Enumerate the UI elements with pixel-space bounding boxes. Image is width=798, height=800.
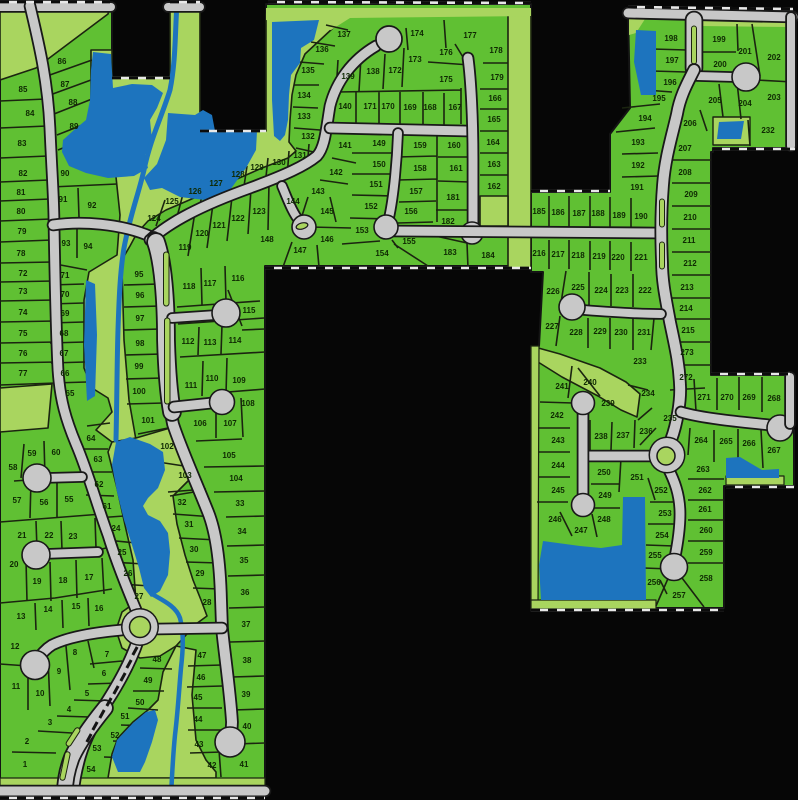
svg-text:164: 164 (486, 138, 500, 147)
svg-text:37: 37 (242, 620, 251, 629)
svg-text:32: 32 (178, 498, 187, 507)
svg-text:56: 56 (40, 498, 49, 507)
svg-text:81: 81 (17, 188, 26, 197)
svg-text:82: 82 (19, 169, 28, 178)
svg-text:226: 226 (546, 287, 560, 296)
svg-text:254: 254 (655, 531, 669, 540)
svg-text:172: 172 (388, 66, 402, 75)
svg-text:1: 1 (23, 760, 28, 769)
svg-text:111: 111 (185, 381, 198, 390)
svg-text:123: 123 (252, 207, 266, 216)
svg-text:131: 131 (293, 151, 307, 160)
svg-text:174: 174 (410, 29, 424, 38)
svg-text:230: 230 (614, 328, 628, 337)
svg-text:64: 64 (87, 434, 96, 443)
svg-text:260: 260 (699, 526, 713, 535)
svg-text:190: 190 (634, 212, 648, 221)
svg-text:104: 104 (229, 474, 243, 483)
svg-text:62: 62 (95, 480, 104, 489)
svg-text:154: 154 (375, 249, 389, 258)
svg-text:60: 60 (52, 448, 61, 457)
svg-text:29: 29 (196, 569, 205, 578)
svg-text:178: 178 (489, 46, 503, 55)
svg-text:38: 38 (243, 656, 252, 665)
svg-text:22: 22 (45, 531, 54, 540)
svg-text:138: 138 (366, 67, 380, 76)
svg-text:261: 261 (698, 505, 712, 514)
svg-text:152: 152 (364, 202, 378, 211)
svg-text:118: 118 (183, 282, 196, 291)
svg-text:211: 211 (683, 236, 696, 245)
svg-text:46: 46 (197, 673, 206, 682)
svg-text:75: 75 (19, 329, 28, 338)
svg-text:171: 171 (363, 102, 377, 111)
svg-text:72: 72 (19, 269, 28, 278)
svg-text:170: 170 (381, 102, 395, 111)
svg-text:83: 83 (18, 139, 27, 148)
svg-text:91: 91 (59, 195, 68, 204)
svg-text:110: 110 (206, 374, 219, 383)
svg-text:238: 238 (594, 432, 608, 441)
svg-text:68: 68 (60, 329, 69, 338)
svg-text:30: 30 (190, 545, 199, 554)
svg-text:16: 16 (95, 604, 104, 613)
svg-text:157: 157 (409, 187, 423, 196)
svg-text:250: 250 (597, 468, 611, 477)
svg-text:58: 58 (9, 463, 18, 472)
svg-text:268: 268 (767, 394, 781, 403)
svg-text:31: 31 (185, 520, 194, 529)
svg-text:49: 49 (144, 676, 153, 685)
svg-text:222: 222 (638, 286, 652, 295)
svg-text:36: 36 (241, 588, 250, 597)
svg-text:265: 265 (719, 437, 733, 446)
svg-text:73: 73 (19, 287, 28, 296)
svg-text:87: 87 (61, 80, 70, 89)
svg-text:242: 242 (550, 411, 564, 420)
svg-text:251: 251 (630, 473, 644, 482)
svg-text:189: 189 (612, 211, 626, 220)
svg-text:273: 273 (680, 348, 694, 357)
svg-text:130: 130 (272, 158, 286, 167)
svg-text:248: 248 (597, 515, 611, 524)
svg-text:100: 100 (132, 387, 146, 396)
svg-text:6: 6 (102, 669, 107, 678)
svg-text:235: 235 (663, 414, 677, 423)
svg-text:85: 85 (19, 85, 28, 94)
svg-text:54: 54 (87, 765, 96, 774)
svg-text:108: 108 (241, 399, 255, 408)
svg-text:126: 126 (188, 187, 202, 196)
svg-text:151: 151 (369, 180, 383, 189)
svg-text:115: 115 (243, 306, 256, 315)
svg-text:187: 187 (572, 209, 586, 218)
svg-text:215: 215 (681, 326, 695, 335)
svg-text:120: 120 (195, 229, 209, 238)
svg-text:77: 77 (19, 369, 28, 378)
svg-text:217: 217 (551, 250, 565, 259)
svg-text:48: 48 (153, 655, 162, 664)
svg-text:17: 17 (85, 573, 94, 582)
svg-text:158: 158 (413, 164, 427, 173)
svg-text:96: 96 (136, 291, 145, 300)
svg-text:18: 18 (59, 576, 68, 585)
svg-text:53: 53 (93, 744, 102, 753)
svg-text:214: 214 (679, 304, 693, 313)
svg-text:150: 150 (372, 160, 386, 169)
svg-text:76: 76 (19, 349, 28, 358)
svg-text:119: 119 (179, 243, 192, 252)
svg-text:147: 147 (293, 246, 307, 255)
svg-text:114: 114 (229, 336, 242, 345)
svg-text:40: 40 (243, 722, 252, 731)
svg-text:13: 13 (17, 612, 26, 621)
svg-text:107: 107 (223, 419, 237, 428)
svg-text:135: 135 (301, 66, 315, 75)
svg-text:44: 44 (194, 715, 203, 724)
svg-text:165: 165 (487, 115, 501, 124)
svg-text:173: 173 (408, 55, 422, 64)
svg-text:271: 271 (697, 393, 711, 402)
svg-text:196: 196 (663, 78, 677, 87)
svg-text:149: 149 (372, 139, 386, 148)
svg-text:88: 88 (69, 98, 78, 107)
svg-text:78: 78 (17, 249, 26, 258)
svg-text:67: 67 (60, 349, 69, 358)
svg-text:116: 116 (232, 274, 245, 283)
svg-text:233: 233 (633, 357, 647, 366)
svg-text:208: 208 (678, 168, 692, 177)
svg-text:195: 195 (652, 94, 666, 103)
svg-text:55: 55 (65, 495, 74, 504)
svg-text:35: 35 (240, 556, 249, 565)
svg-text:146: 146 (320, 235, 334, 244)
svg-text:12: 12 (11, 642, 20, 651)
svg-text:142: 142 (329, 168, 343, 177)
svg-text:28: 28 (203, 598, 212, 607)
svg-text:65: 65 (66, 389, 75, 398)
svg-text:155: 155 (402, 237, 416, 246)
svg-text:15: 15 (72, 602, 81, 611)
svg-text:167: 167 (448, 103, 462, 112)
svg-text:198: 198 (664, 34, 678, 43)
svg-text:153: 153 (355, 226, 369, 235)
svg-text:219: 219 (592, 252, 606, 261)
svg-text:252: 252 (654, 486, 668, 495)
svg-text:216: 216 (532, 249, 546, 258)
svg-text:234: 234 (641, 389, 655, 398)
svg-text:221: 221 (634, 253, 648, 262)
svg-text:182: 182 (441, 217, 455, 226)
svg-text:263: 263 (696, 465, 710, 474)
svg-text:140: 140 (338, 102, 352, 111)
svg-text:7: 7 (105, 650, 110, 659)
svg-text:112: 112 (182, 337, 195, 346)
svg-text:102: 102 (160, 442, 174, 451)
svg-text:148: 148 (260, 235, 274, 244)
svg-text:109: 109 (232, 376, 246, 385)
svg-text:240: 240 (583, 378, 597, 387)
svg-text:51: 51 (121, 712, 130, 721)
svg-text:11: 11 (12, 682, 21, 691)
svg-text:42: 42 (208, 761, 217, 770)
svg-text:258: 258 (699, 574, 713, 583)
svg-text:89: 89 (70, 122, 79, 131)
svg-text:92: 92 (88, 201, 97, 210)
svg-text:249: 249 (598, 491, 612, 500)
svg-text:159: 159 (413, 141, 427, 150)
svg-text:259: 259 (699, 548, 713, 557)
svg-text:264: 264 (694, 436, 708, 445)
svg-text:228: 228 (569, 328, 583, 337)
svg-text:133: 133 (297, 112, 311, 121)
svg-text:207: 207 (678, 144, 692, 153)
svg-text:201: 201 (738, 47, 752, 56)
svg-text:209: 209 (684, 190, 698, 199)
svg-text:224: 224 (594, 286, 608, 295)
svg-text:185: 185 (532, 207, 546, 216)
svg-text:163: 163 (487, 160, 501, 169)
svg-text:59: 59 (28, 449, 37, 458)
svg-text:145: 145 (320, 207, 334, 216)
svg-text:129: 129 (250, 163, 264, 172)
svg-text:161: 161 (449, 164, 463, 173)
svg-text:255: 255 (648, 551, 662, 560)
svg-text:229: 229 (593, 327, 607, 336)
svg-text:101: 101 (141, 416, 155, 425)
svg-text:267: 267 (767, 446, 781, 455)
svg-text:33: 33 (236, 499, 245, 508)
svg-text:71: 71 (61, 271, 70, 280)
svg-text:192: 192 (631, 161, 645, 170)
svg-text:95: 95 (135, 270, 144, 279)
svg-text:63: 63 (94, 455, 103, 464)
svg-text:244: 244 (551, 461, 565, 470)
svg-text:141: 141 (338, 141, 352, 150)
svg-text:86: 86 (58, 57, 67, 66)
svg-text:97: 97 (136, 314, 145, 323)
svg-text:179: 179 (490, 73, 504, 82)
svg-text:61: 61 (103, 502, 112, 511)
svg-text:99: 99 (135, 362, 144, 371)
svg-text:210: 210 (683, 213, 697, 222)
svg-text:117: 117 (204, 279, 217, 288)
svg-text:121: 121 (212, 221, 226, 230)
svg-text:206: 206 (683, 119, 697, 128)
svg-text:132: 132 (301, 132, 315, 141)
svg-text:162: 162 (487, 182, 501, 191)
svg-text:183: 183 (443, 248, 457, 257)
svg-text:139: 139 (341, 72, 355, 81)
svg-text:70: 70 (61, 290, 70, 299)
svg-text:225: 225 (571, 283, 585, 292)
svg-text:243: 243 (551, 436, 565, 445)
svg-text:21: 21 (18, 531, 27, 540)
svg-text:106: 106 (193, 419, 207, 428)
svg-text:193: 193 (631, 138, 645, 147)
svg-text:27: 27 (135, 592, 144, 601)
svg-text:128: 128 (231, 170, 245, 179)
svg-text:236: 236 (639, 427, 653, 436)
svg-text:231: 231 (637, 328, 651, 337)
svg-text:69: 69 (61, 309, 70, 318)
svg-text:113: 113 (204, 338, 217, 347)
svg-text:137: 137 (337, 30, 351, 39)
svg-text:8: 8 (73, 648, 78, 657)
svg-text:122: 122 (231, 214, 245, 223)
svg-text:186: 186 (551, 208, 565, 217)
svg-text:223: 223 (615, 286, 629, 295)
svg-text:50: 50 (136, 698, 145, 707)
svg-text:24: 24 (112, 524, 121, 533)
svg-text:57: 57 (13, 496, 22, 505)
svg-text:5: 5 (85, 689, 90, 698)
svg-text:239: 239 (601, 399, 615, 408)
svg-text:227: 227 (545, 322, 559, 331)
svg-text:41: 41 (240, 760, 249, 769)
svg-text:144: 144 (286, 197, 300, 206)
svg-text:156: 156 (404, 207, 418, 216)
svg-text:103: 103 (178, 471, 192, 480)
svg-text:213: 213 (680, 283, 694, 292)
svg-text:218: 218 (571, 251, 585, 260)
svg-text:20: 20 (10, 560, 19, 569)
svg-text:266: 266 (742, 439, 756, 448)
svg-text:272: 272 (679, 373, 693, 382)
svg-text:241: 241 (555, 382, 569, 391)
svg-text:2: 2 (25, 737, 30, 746)
svg-text:181: 181 (446, 193, 460, 202)
svg-text:45: 45 (194, 693, 203, 702)
svg-text:246: 246 (548, 515, 562, 524)
svg-text:177: 177 (463, 31, 477, 40)
svg-text:270: 270 (720, 393, 734, 402)
svg-text:25: 25 (118, 548, 127, 557)
svg-text:84: 84 (26, 109, 35, 118)
svg-text:188: 188 (591, 209, 605, 218)
svg-text:184: 184 (481, 251, 495, 260)
svg-text:269: 269 (742, 393, 756, 402)
svg-text:169: 169 (403, 103, 417, 112)
svg-text:124: 124 (147, 214, 161, 223)
svg-text:160: 160 (447, 141, 461, 150)
svg-text:43: 43 (195, 740, 204, 749)
svg-text:79: 79 (18, 227, 27, 236)
svg-text:168: 168 (423, 103, 437, 112)
svg-text:257: 257 (672, 591, 686, 600)
svg-text:3: 3 (48, 718, 53, 727)
svg-text:262: 262 (698, 486, 712, 495)
svg-text:253: 253 (658, 509, 672, 518)
svg-text:247: 247 (574, 526, 588, 535)
svg-text:52: 52 (111, 731, 120, 740)
svg-text:47: 47 (198, 651, 207, 660)
svg-text:143: 143 (311, 187, 325, 196)
svg-text:200: 200 (713, 60, 727, 69)
svg-text:256: 256 (647, 578, 661, 587)
svg-text:245: 245 (551, 486, 565, 495)
svg-text:194: 194 (638, 114, 652, 123)
svg-text:202: 202 (767, 53, 781, 62)
svg-text:10: 10 (36, 689, 45, 698)
svg-text:26: 26 (124, 569, 133, 578)
svg-text:34: 34 (238, 527, 247, 536)
svg-text:90: 90 (61, 169, 70, 178)
svg-text:105: 105 (222, 451, 236, 460)
svg-text:19: 19 (33, 577, 42, 586)
svg-text:4: 4 (67, 705, 72, 714)
svg-text:232: 232 (761, 126, 775, 135)
svg-text:66: 66 (61, 369, 70, 378)
svg-text:191: 191 (630, 183, 644, 192)
svg-text:80: 80 (17, 207, 26, 216)
svg-text:39: 39 (242, 690, 251, 699)
svg-text:205: 205 (708, 96, 722, 105)
svg-text:175: 175 (439, 75, 453, 84)
svg-text:197: 197 (665, 56, 679, 65)
svg-text:204: 204 (738, 99, 752, 108)
svg-text:9: 9 (57, 667, 62, 676)
svg-text:237: 237 (616, 431, 630, 440)
svg-text:199: 199 (712, 35, 726, 44)
svg-text:136: 136 (315, 45, 329, 54)
svg-text:203: 203 (767, 93, 781, 102)
svg-text:93: 93 (62, 239, 71, 248)
svg-text:166: 166 (488, 94, 502, 103)
svg-text:94: 94 (84, 242, 93, 251)
svg-text:125: 125 (165, 197, 179, 206)
svg-text:14: 14 (44, 605, 53, 614)
svg-text:74: 74 (19, 308, 28, 317)
svg-text:220: 220 (611, 253, 625, 262)
svg-text:212: 212 (683, 259, 697, 268)
svg-text:98: 98 (136, 339, 145, 348)
svg-text:134: 134 (297, 91, 311, 100)
svg-text:127: 127 (209, 179, 223, 188)
svg-text:23: 23 (69, 532, 78, 541)
svg-text:176: 176 (439, 48, 453, 57)
